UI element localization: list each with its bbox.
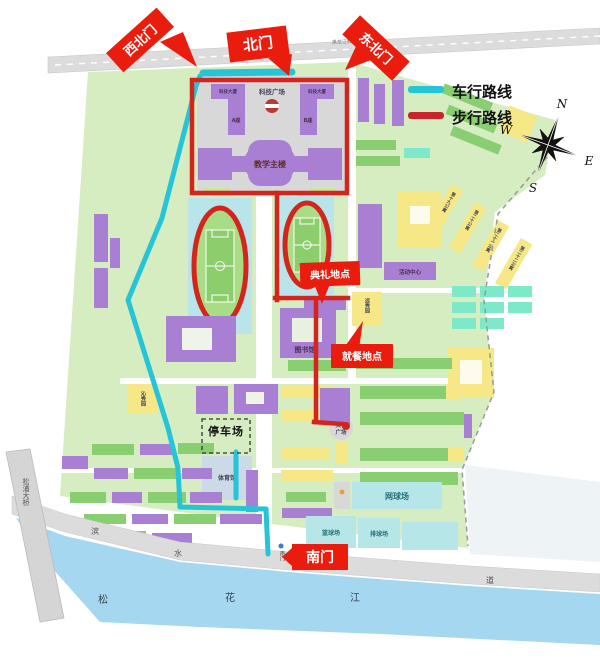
dining-hall-west-label: 沁秀园 (140, 390, 147, 407)
road-char: 道 (486, 575, 494, 585)
volleyball-court-label: 排球场 (370, 530, 388, 538)
south-gate-marker (279, 544, 284, 549)
basketball-court-label: 篮球场 (321, 529, 340, 537)
dining-label: 就餐地点 (342, 350, 382, 363)
dining-hall-east-label: 远秀园 (364, 297, 371, 314)
compass-w: W (500, 123, 514, 137)
tower-a-name: 科技大厦 (219, 88, 237, 95)
compass-s: S (529, 181, 537, 195)
college-building (196, 386, 228, 414)
teal-buildings (452, 286, 532, 329)
legend-walking-swatch (408, 112, 444, 119)
plaza-label: 科技广场 (259, 87, 286, 96)
legend-vehicle-label: 车行路线 (452, 83, 512, 101)
road-char: 水 (174, 548, 182, 558)
bridge-label: 松浦大桥 (22, 477, 30, 507)
gate-south-label: 南门 (306, 549, 334, 566)
campus-map: 路 黑龙江科技大学站 科技大厦 科技大厦 A座 B座 科技广场 教学主楼 (0, 0, 600, 671)
college-courtyard (246, 392, 264, 404)
river-name-char: 花 (225, 591, 235, 604)
stadium-west (188, 198, 252, 334)
activity-center-label: 活动中心 (399, 268, 422, 276)
compass-n: N (556, 97, 568, 111)
gym-label: 体育馆 (218, 474, 236, 482)
main-teaching-label: 教学主楼 (253, 159, 286, 169)
walking-route-end-dot (342, 422, 350, 430)
tower-b-unit: B座 (304, 117, 313, 124)
tower-a-unit: A座 (232, 117, 241, 124)
library-label: 图书馆 (295, 345, 316, 354)
research-building (166, 316, 236, 362)
road-char: 滨 (91, 526, 99, 536)
parking-label: 停车场 (208, 424, 244, 438)
legend-vehicle-swatch (408, 86, 444, 93)
compass-e: E (584, 154, 594, 168)
gate-north-label: 北门 (242, 33, 274, 55)
east-shore-area (465, 465, 600, 562)
tennis-court-label: 网球场 (385, 491, 409, 501)
river-name-char: 江 (350, 592, 360, 604)
campus-map-svg: 路 黑龙江科技大学站 科技大厦 科技大厦 A座 B座 科技广场 教学主楼 (0, 0, 600, 671)
tower-b-name: 科技大厦 (308, 88, 326, 95)
river-name-char: 松 (98, 593, 108, 606)
